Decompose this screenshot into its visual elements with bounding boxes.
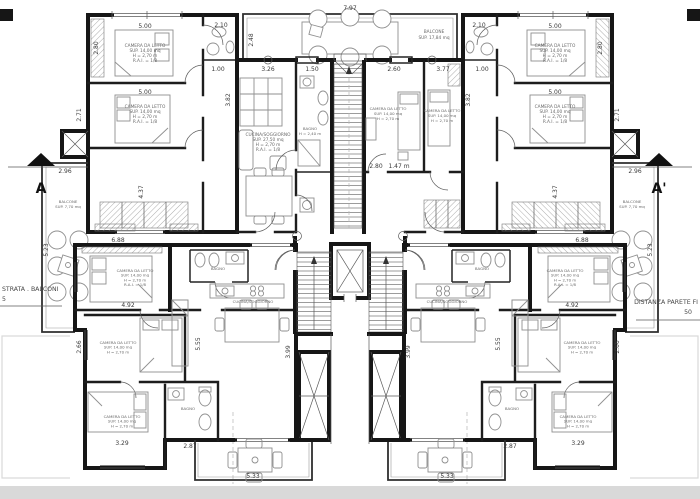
room-label-bath: BAGNO xyxy=(475,266,489,271)
dim: 2.10 xyxy=(214,22,228,29)
room-label-bath: BAGNO xyxy=(505,406,519,411)
room-label-bath: BAGNO xyxy=(181,406,195,411)
floor-plan-page: A A' STRATA . BALCONI 5 DISTANZA PARETE … xyxy=(0,0,700,499)
note-right-line1: DISTANZA PARETE FI xyxy=(634,299,698,306)
dim: 5.23 xyxy=(647,243,654,257)
note-right-line2: 50 xyxy=(684,309,692,316)
dim: 2.66 xyxy=(76,340,83,354)
section-marker-a-prime: A' xyxy=(651,181,666,197)
dim: 1.00 xyxy=(475,66,489,73)
dim: 3.99 xyxy=(405,345,412,359)
dim: 5.55 xyxy=(495,337,502,351)
dim: 4.37 xyxy=(552,185,559,199)
dim: 4.92 xyxy=(565,302,579,309)
dim: 3.99 xyxy=(285,345,292,359)
dim: 3.29 xyxy=(115,440,129,447)
floor-plan-svg: A A' STRATA . BALCONI 5 DISTANZA PARETE … xyxy=(0,0,700,499)
dim: 3.82 xyxy=(225,93,232,107)
room-label-bath: BAGNO xyxy=(211,266,225,271)
balcony-label: SUP. 17,84 mq xyxy=(418,35,449,41)
dim: 2.10 xyxy=(472,22,486,29)
section-marker-a: A xyxy=(36,181,47,197)
dim: 3.29 xyxy=(571,440,585,447)
dim: 5.00 xyxy=(138,89,152,96)
room-label-living: CUCINA/SOGGIORNO xyxy=(233,299,274,304)
dim: 2.71 xyxy=(76,108,83,122)
balcony-label: SUP. 7,70 mq xyxy=(619,204,645,209)
bottom-gray-strip xyxy=(0,486,700,499)
dim: 2.87 xyxy=(503,443,517,450)
dim: 5.00 xyxy=(548,23,562,30)
dim: 5.00 xyxy=(138,23,152,30)
dim: 3.82 xyxy=(465,93,472,107)
balcony-label: BALCONE xyxy=(424,29,445,35)
dim: 6.88 xyxy=(111,237,125,244)
dim: 2.60 xyxy=(387,66,401,73)
dim: 5.55 xyxy=(195,337,202,351)
dim: 5.33 xyxy=(440,473,454,480)
dim: 5.33 xyxy=(246,473,260,480)
upper-staircase xyxy=(332,62,364,232)
dim: 4.37 xyxy=(138,185,145,199)
dim: 2.80 xyxy=(369,163,383,170)
balcony-label: SUP. 7,70 mq xyxy=(55,204,81,209)
note-left-line2: 5 xyxy=(2,296,6,303)
dim: 2.66 xyxy=(614,340,621,354)
dim: 4.92 xyxy=(121,302,135,309)
note-left-line1: STRATA . BALCONI xyxy=(2,286,59,293)
dim: 2.96 xyxy=(58,168,72,175)
dim: 1.00 xyxy=(211,66,225,73)
dim: 1.47 m xyxy=(388,163,409,170)
dim: 2.80 xyxy=(93,41,100,55)
dim: 3.26 xyxy=(261,66,275,73)
dim: 2.71 xyxy=(614,108,621,122)
dim: 5.00 xyxy=(548,89,562,96)
dim: 5.23 xyxy=(43,243,50,257)
dim: 2.87 xyxy=(183,443,197,450)
dim: 2.80 xyxy=(597,41,604,55)
dim: 2.96 xyxy=(628,168,642,175)
dim: 7.97 xyxy=(343,5,357,12)
dim: 2.48 xyxy=(248,33,255,47)
dim: 1.50 xyxy=(305,66,319,73)
room-label-living: CUCINA/SOGGIORNO xyxy=(427,299,468,304)
dim: 3.77 xyxy=(436,66,450,73)
dim: 6.88 xyxy=(575,237,589,244)
